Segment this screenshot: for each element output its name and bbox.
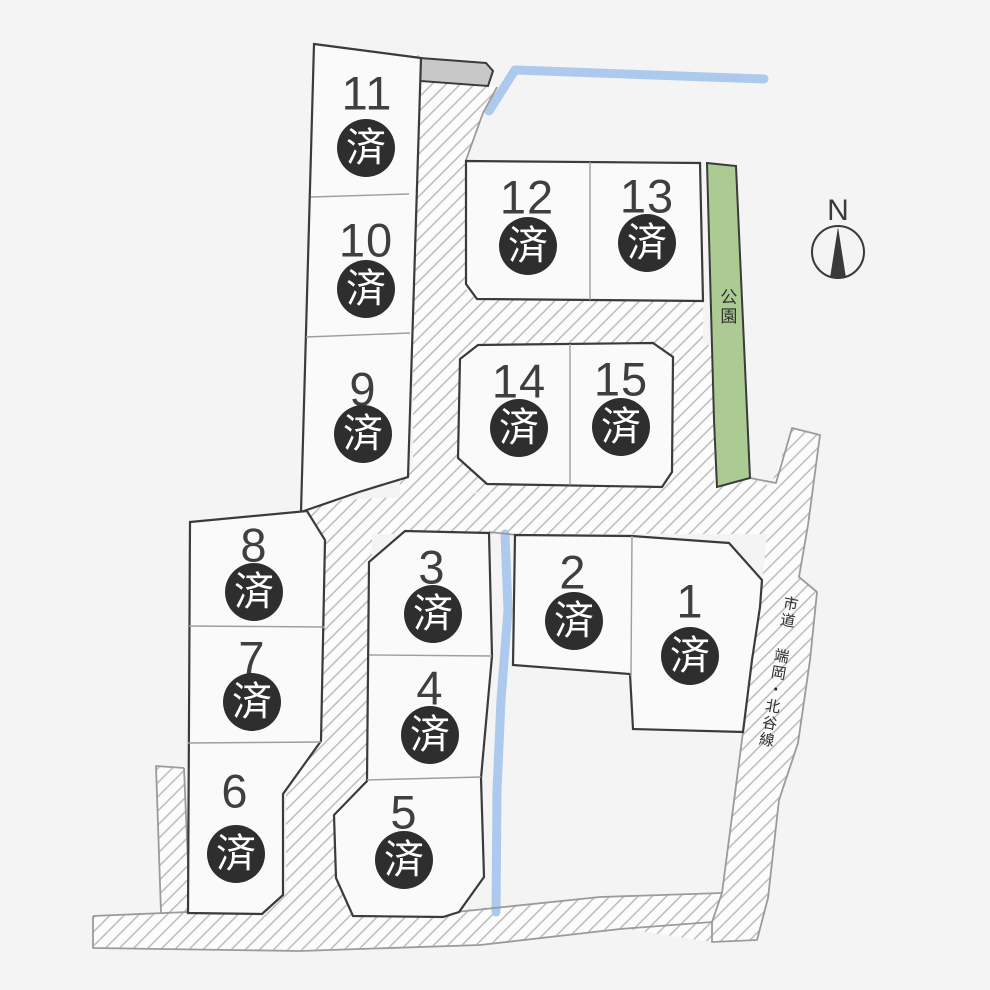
lot-5-number[interactable]: 5 — [390, 789, 417, 836]
lot-6-number[interactable]: 6 — [221, 768, 248, 815]
lot-4-number[interactable]: 4 — [416, 665, 443, 712]
lot-14-number[interactable]: 14 — [492, 358, 546, 405]
paved-strip — [420, 58, 493, 86]
lot-1-number[interactable]: 1 — [676, 578, 703, 625]
lot-9-sold-badge: 済 — [334, 405, 392, 463]
divider-7-6 — [188, 742, 321, 743]
lot-12-number[interactable]: 12 — [500, 174, 554, 221]
compass-north-label: N — [827, 194, 849, 228]
lot-3-sold-badge: 済 — [404, 585, 462, 643]
subdivision-map: 1 済 2 済 3 済 4 済 5 済 6 済 7 済 8 済 9 済 10 済… — [0, 0, 990, 990]
lot-5-sold-badge: 済 — [375, 831, 433, 889]
park-label: 公園 — [717, 288, 736, 326]
lot-14-sold-badge: 済 — [490, 399, 548, 457]
lot-10-number[interactable]: 10 — [339, 217, 393, 264]
lot-4-sold-badge: 済 — [401, 706, 459, 764]
lot-8-sold-badge: 済 — [225, 563, 283, 621]
divider-3-4 — [369, 655, 492, 656]
lot-2-number[interactable]: 2 — [559, 549, 586, 596]
lot-15-sold-badge: 済 — [592, 398, 650, 456]
lot-11-sold-badge: 済 — [337, 119, 395, 177]
lot-11-number[interactable]: 11 — [342, 70, 393, 117]
lot-3-number[interactable]: 3 — [418, 544, 445, 591]
lot-6-sold-badge: 済 — [207, 825, 265, 883]
divider-2-1 — [631, 536, 632, 676]
lot-12-sold-badge: 済 — [499, 217, 557, 275]
lot-8-number[interactable]: 8 — [240, 522, 267, 569]
lot-15-number[interactable]: 15 — [594, 356, 648, 403]
lot-10-sold-badge: 済 — [337, 260, 395, 318]
lot-7-sold-badge: 済 — [223, 673, 281, 731]
lot-13-sold-badge: 済 — [618, 214, 676, 272]
lot-13-number[interactable]: 13 — [620, 173, 674, 220]
map-canvas — [0, 0, 990, 990]
lot-1-sold-badge: 済 — [661, 627, 719, 685]
lot-2-sold-badge: 済 — [545, 592, 603, 650]
divider-8-7 — [189, 626, 324, 627]
